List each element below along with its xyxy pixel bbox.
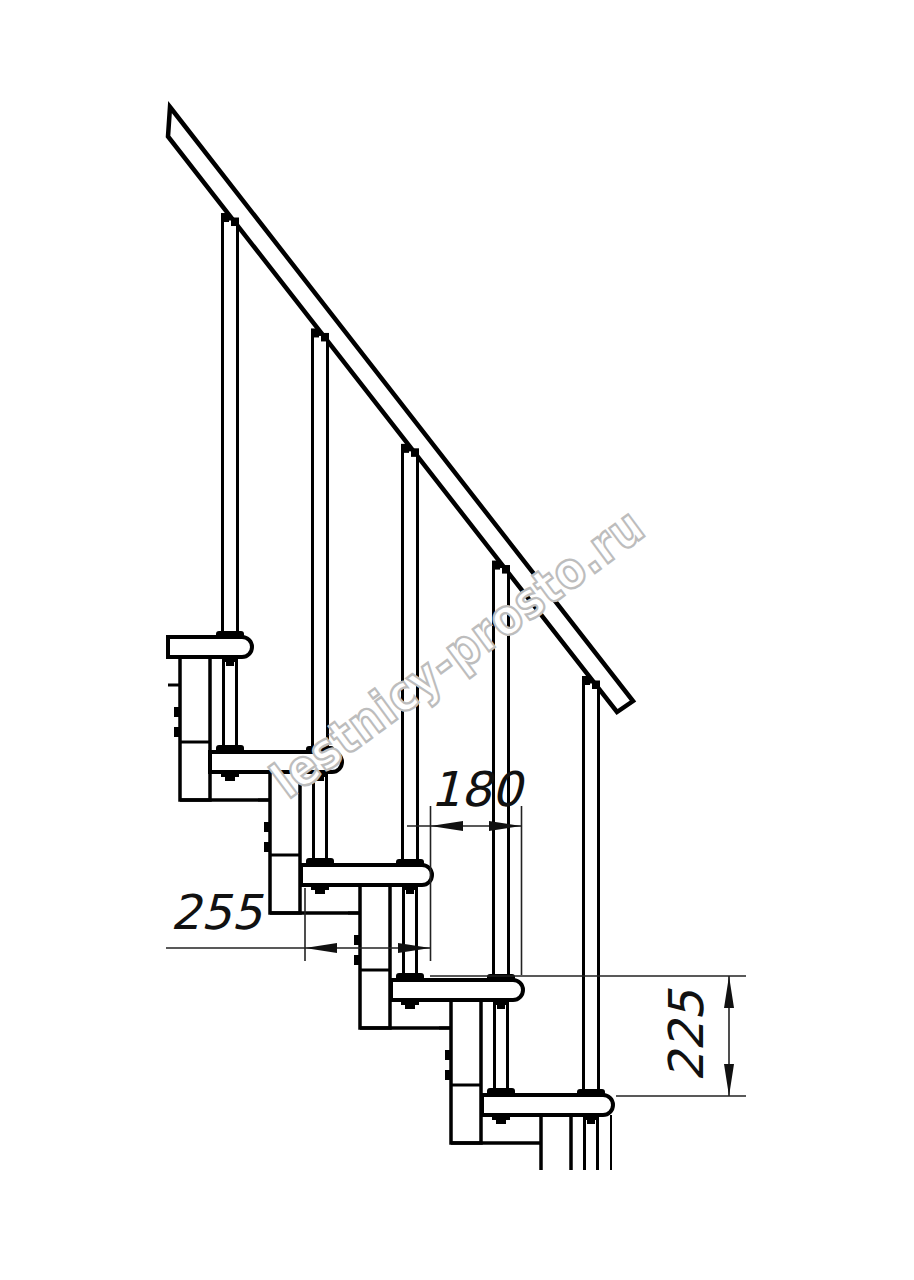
baluster-top-connector [311, 328, 319, 337]
staircase-side-view-drawing: 180 255 225 lestnicy-prosto.ru [0, 0, 914, 1280]
bolt-under-tread [496, 1120, 506, 1124]
spine-column-1 [180, 657, 210, 800]
bolt-under-tread [406, 890, 414, 894]
support-post-1 [224, 657, 237, 752]
arrow-up [724, 976, 734, 1008]
bolt-under-tread [311, 885, 329, 890]
tread-4 [391, 980, 523, 1000]
baluster-foot [396, 859, 424, 866]
tread-3 [301, 865, 432, 885]
baluster-top-connector [411, 449, 419, 457]
bolt-under-tread [497, 1005, 505, 1009]
baluster-top-connector [502, 566, 510, 574]
dimension-value-255: 255 [170, 884, 264, 940]
post-foot [487, 1088, 515, 1096]
baluster-5 [584, 682, 599, 1095]
bolt-under-tread [587, 1120, 595, 1124]
bolt-under-tread [583, 1115, 599, 1120]
column-bolt-tab [174, 727, 181, 737]
bolt-under-tread [493, 1000, 509, 1005]
bolt-under-tread [401, 1000, 419, 1005]
bolt-under-tread [222, 657, 238, 662]
arrow-left [431, 821, 464, 831]
staircase-drawing-canvas: 180 255 225 lestnicy-prosto.ru [0, 0, 914, 1280]
baluster-top-connector [401, 444, 409, 453]
baluster-foot [216, 631, 244, 638]
post-foot [396, 973, 424, 981]
bolt-under-tread [402, 885, 418, 890]
bolt-under-tread [315, 890, 325, 894]
tread-5 [482, 1095, 613, 1115]
tread-1 [168, 637, 252, 657]
baluster-2 [313, 334, 328, 752]
baluster-top-connector [492, 561, 500, 570]
support-post-4 [495, 1000, 508, 1095]
baluster-1 [223, 219, 238, 637]
column-bolt-tab [445, 1070, 452, 1080]
dimension-value-180: 180 [430, 761, 525, 817]
column-bolt-tab [264, 822, 271, 832]
baluster-top-connector [221, 213, 229, 222]
baluster-foot [487, 974, 515, 981]
baluster-top-connector [231, 218, 239, 226]
dimension-value-225: 225 [658, 988, 714, 1082]
bolt-under-tread [221, 772, 239, 777]
bolt-under-tread [492, 1115, 510, 1120]
baluster-top-connector [592, 681, 600, 689]
bolt-under-tread [405, 1005, 415, 1009]
baluster-top-connector [582, 676, 590, 685]
column-bolt-tab [354, 955, 361, 965]
spine-column-4 [451, 1000, 481, 1143]
spine-column-3 [360, 885, 390, 1028]
arrow-left [305, 943, 337, 953]
post-foot [306, 858, 334, 866]
baluster-foot [577, 1089, 605, 1096]
arrow-down [724, 1064, 734, 1096]
bolt-under-tread [225, 777, 235, 781]
column-bolt-tab [354, 935, 361, 945]
support-post-3 [404, 885, 417, 980]
baluster-top-connector [321, 333, 329, 341]
column-bolt-tab [445, 1050, 452, 1060]
column-bolt-tab [264, 842, 271, 852]
column-bolt-tab [174, 707, 181, 717]
post-foot [216, 745, 244, 753]
bolt-under-tread [226, 662, 234, 666]
